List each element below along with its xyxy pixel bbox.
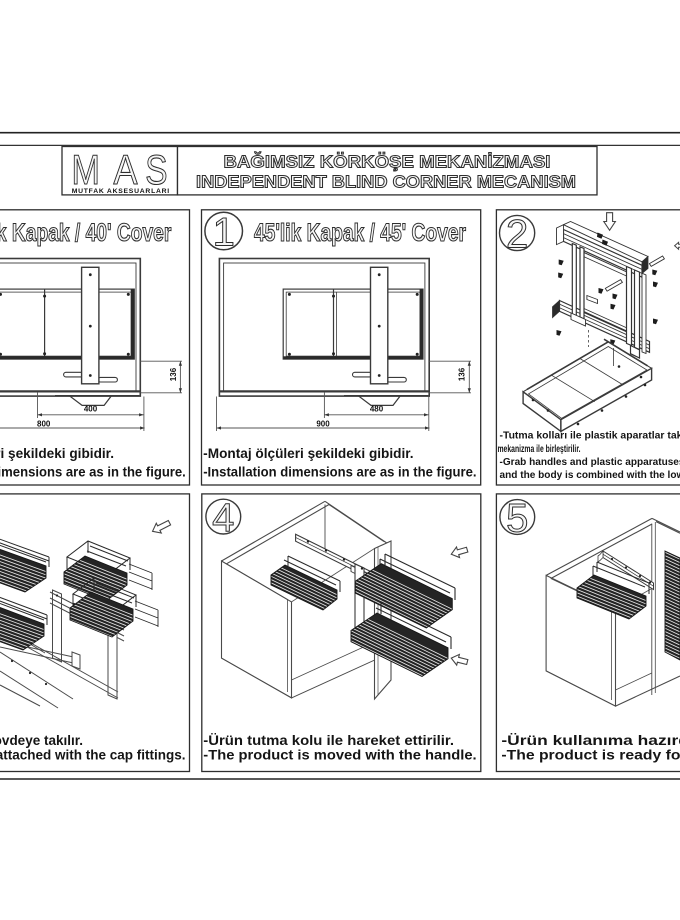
svg-text:400: 400 xyxy=(84,405,98,414)
svg-text:-Montaj ölçüleri şekildeki gib: -Montaj ölçüleri şekildeki gibidir. xyxy=(0,446,114,461)
svg-text:S: S xyxy=(145,146,167,193)
svg-text:-Montaj ölçüleri şekildeki gib: -Montaj ölçüleri şekildeki gibidir. xyxy=(203,446,413,461)
svg-text:A: A xyxy=(114,146,138,193)
svg-text:136: 136 xyxy=(169,367,178,381)
svg-text:-The product is moved with the: -The product is moved with the handle. xyxy=(203,748,476,763)
svg-text:-Grab handles and plastic appa: -Grab handles and plastic apparatuses xyxy=(500,457,680,468)
svg-text:1: 1 xyxy=(213,210,235,254)
svg-text:-Installation dimensions are a: -Installation dimensions are as in the f… xyxy=(0,464,186,479)
svg-text:-Ürün tutma kolu ile hareket e: -Ürün tutma kolu ile hareket ettirilir. xyxy=(203,733,454,748)
svg-text:mekanizma ile birleştirilir.: mekanizma ile birleştirilir. xyxy=(498,444,581,455)
svg-text:-The top baskets are attached: -The top baskets are attached with the c… xyxy=(0,748,186,763)
svg-text:-Tutma kolları ile plastik apa: -Tutma kolları ile plastik aparatlar tak… xyxy=(500,431,680,442)
svg-text:-The product is ready for use.: -The product is ready for use. xyxy=(501,748,680,763)
svg-text:4: 4 xyxy=(212,496,234,540)
svg-text:480: 480 xyxy=(370,405,384,414)
svg-text:MUTFAK AKSESUARLARI: MUTFAK AKSESUARLARI xyxy=(72,188,170,195)
svg-text:-Installation dimensions are a: -Installation dimensions are as in the f… xyxy=(203,464,476,479)
svg-text:5: 5 xyxy=(506,496,528,540)
svg-text:45'lik Kapak / 45' Cover: 45'lik Kapak / 45' Cover xyxy=(254,219,466,247)
svg-text:40'lik Kapak / 40' Cover: 40'lik Kapak / 40' Cover xyxy=(0,219,172,247)
svg-text:900: 900 xyxy=(316,420,330,429)
svg-text:INDEPENDENT BLIND CORNER MECAN: INDEPENDENT BLIND CORNER MECANISM xyxy=(196,171,576,191)
svg-text:and the body is combined with: and the body is combined with the lower … xyxy=(500,470,680,481)
svg-text:-Üst sepetler kapaklar ile göv: -Üst sepetler kapaklar ile gövdeye takıl… xyxy=(0,733,83,748)
svg-text:136: 136 xyxy=(458,367,467,381)
svg-text:2: 2 xyxy=(506,213,528,257)
svg-text:M: M xyxy=(72,146,100,193)
svg-text:-Ürün kullanıma hazırdır.: -Ürün kullanıma hazırdır. xyxy=(501,733,680,748)
svg-text:BAĞIMSIZ KÖRKÖŞE MEKANİZMASI: BAĞIMSIZ KÖRKÖŞE MEKANİZMASI xyxy=(224,151,551,171)
svg-text:800: 800 xyxy=(37,420,51,429)
